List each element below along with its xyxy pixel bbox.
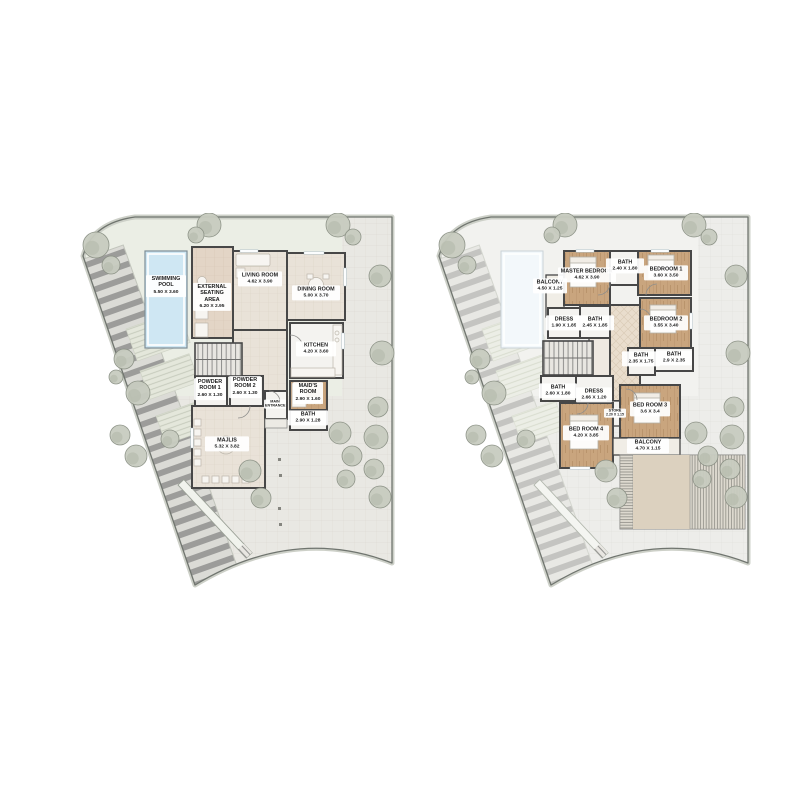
tree-icon bbox=[544, 227, 560, 243]
tree-icon bbox=[342, 446, 362, 466]
tree-icon bbox=[114, 349, 134, 369]
room-label-majlis: MAJLIS5.32 X 3.82 bbox=[205, 436, 249, 451]
entrance-steps bbox=[265, 419, 287, 428]
tree-icon bbox=[466, 425, 486, 445]
room-label-bath-4: BATH2.9 X 2.35 bbox=[656, 350, 692, 365]
tree-icon bbox=[725, 486, 747, 508]
tree-icon bbox=[720, 459, 740, 479]
room-label-living-room: LIVING ROOM4.62 X 3.90 bbox=[238, 271, 282, 286]
stairs bbox=[195, 343, 242, 376]
tree-icon bbox=[369, 486, 391, 508]
room-label-bedroom-3: BED ROOM 33.6 X 3.4 bbox=[630, 401, 670, 416]
tree-icon bbox=[102, 256, 120, 274]
tree-icon bbox=[251, 488, 271, 508]
room-label-balcony-bottom: BALCONY4.70 X 1.15 bbox=[627, 438, 669, 453]
stairs bbox=[543, 341, 593, 375]
tree-icon bbox=[337, 470, 355, 488]
room-label-bedroom-1: BEDROOM 13.60 X 3.50 bbox=[644, 265, 688, 280]
tree-icon bbox=[724, 397, 744, 417]
room-label-bedroom-4: BED ROOM 44.20 X 3.85 bbox=[563, 425, 609, 440]
tree-icon bbox=[595, 460, 617, 482]
tree-icon bbox=[439, 232, 465, 258]
floor-plans-canvas: SWIMMING POOL5.50 X 3.60 EXTERNAL SEATIN… bbox=[0, 0, 800, 800]
tree-icon bbox=[109, 370, 123, 384]
tree-icon bbox=[720, 425, 744, 449]
swimming-pool bbox=[145, 251, 187, 348]
ground-floor-drawing bbox=[80, 213, 395, 588]
tree-icon bbox=[517, 430, 535, 448]
tree-icon bbox=[364, 459, 384, 479]
tree-icon bbox=[188, 227, 204, 243]
tree-icon bbox=[607, 488, 627, 508]
tree-icon bbox=[481, 445, 503, 467]
room-label-store: STORE2.20 X 1.15 bbox=[604, 409, 626, 418]
tree-icon bbox=[725, 265, 747, 287]
tree-icon bbox=[369, 265, 391, 287]
room-label-swimming-pool: SWIMMING POOL5.50 X 3.60 bbox=[146, 275, 186, 297]
ground-floor-plan: SWIMMING POOL5.50 X 3.60 EXTERNAL SEATIN… bbox=[80, 213, 395, 588]
tree-icon bbox=[345, 229, 361, 245]
room-label-dining-room: DINING ROOM5.00 X 3.70 bbox=[292, 285, 340, 300]
room-label-maids-room: MAID'S ROOM2.90 X 1.60 bbox=[293, 382, 323, 404]
room-label-bath-5: BATH2.60 X 1.80 bbox=[539, 383, 577, 398]
room-label-powder-room-2: POWDER ROOM 22.60 X 1.30 bbox=[229, 376, 261, 398]
tree-icon bbox=[698, 446, 718, 466]
tree-icon bbox=[368, 397, 388, 417]
room-label-bath-top: BATH2.40 X 1.80 bbox=[606, 258, 644, 273]
room-label-bath-3: BATH2.35 X 1.75 bbox=[622, 351, 660, 366]
swimming-pool-ghost bbox=[501, 251, 543, 348]
room-label-bedroom-2: BEDROOM 23.55 X 3.40 bbox=[644, 315, 688, 330]
tree-icon bbox=[726, 341, 750, 365]
tree-icon bbox=[482, 381, 506, 405]
first-floor-plan: BALCONY4.50 X 1.25 MASTER BEDROOM4.62 X … bbox=[436, 213, 751, 588]
tree-icon bbox=[126, 381, 150, 405]
room-label-bath-2: BATH2.45 X 1.85 bbox=[576, 315, 614, 330]
tree-icon bbox=[465, 370, 479, 384]
tree-icon bbox=[83, 232, 109, 258]
tree-icon bbox=[239, 460, 261, 482]
room-label-dress-2: DRESS2.66 X 1.20 bbox=[576, 387, 612, 402]
tree-icon bbox=[329, 422, 351, 444]
room-label-kitchen: KITCHEN4.20 X 3.60 bbox=[296, 341, 336, 356]
tree-icon bbox=[458, 256, 476, 274]
tree-icon bbox=[470, 349, 490, 369]
room-label-external-seating-area: EXTERNAL SEATING AREA6.20 X 2.95 bbox=[193, 283, 231, 311]
tree-icon bbox=[125, 445, 147, 467]
tree-icon bbox=[364, 425, 388, 449]
tree-icon bbox=[701, 229, 717, 245]
tree-icon bbox=[685, 422, 707, 444]
tree-icon bbox=[161, 430, 179, 448]
tree-icon bbox=[693, 470, 711, 488]
room-label-powder-room-1: POWDER ROOM 12.60 X 1.30 bbox=[194, 378, 226, 400]
room-label-bath-ground: BATH2.90 X 1.28 bbox=[288, 410, 328, 425]
tree-icon bbox=[370, 341, 394, 365]
room-label-main-entrance: MAIN ENTRANCE bbox=[264, 400, 286, 409]
page: { "plans": [ { "id": "ground-floor", "ro… bbox=[0, 0, 800, 800]
tree-icon bbox=[110, 425, 130, 445]
